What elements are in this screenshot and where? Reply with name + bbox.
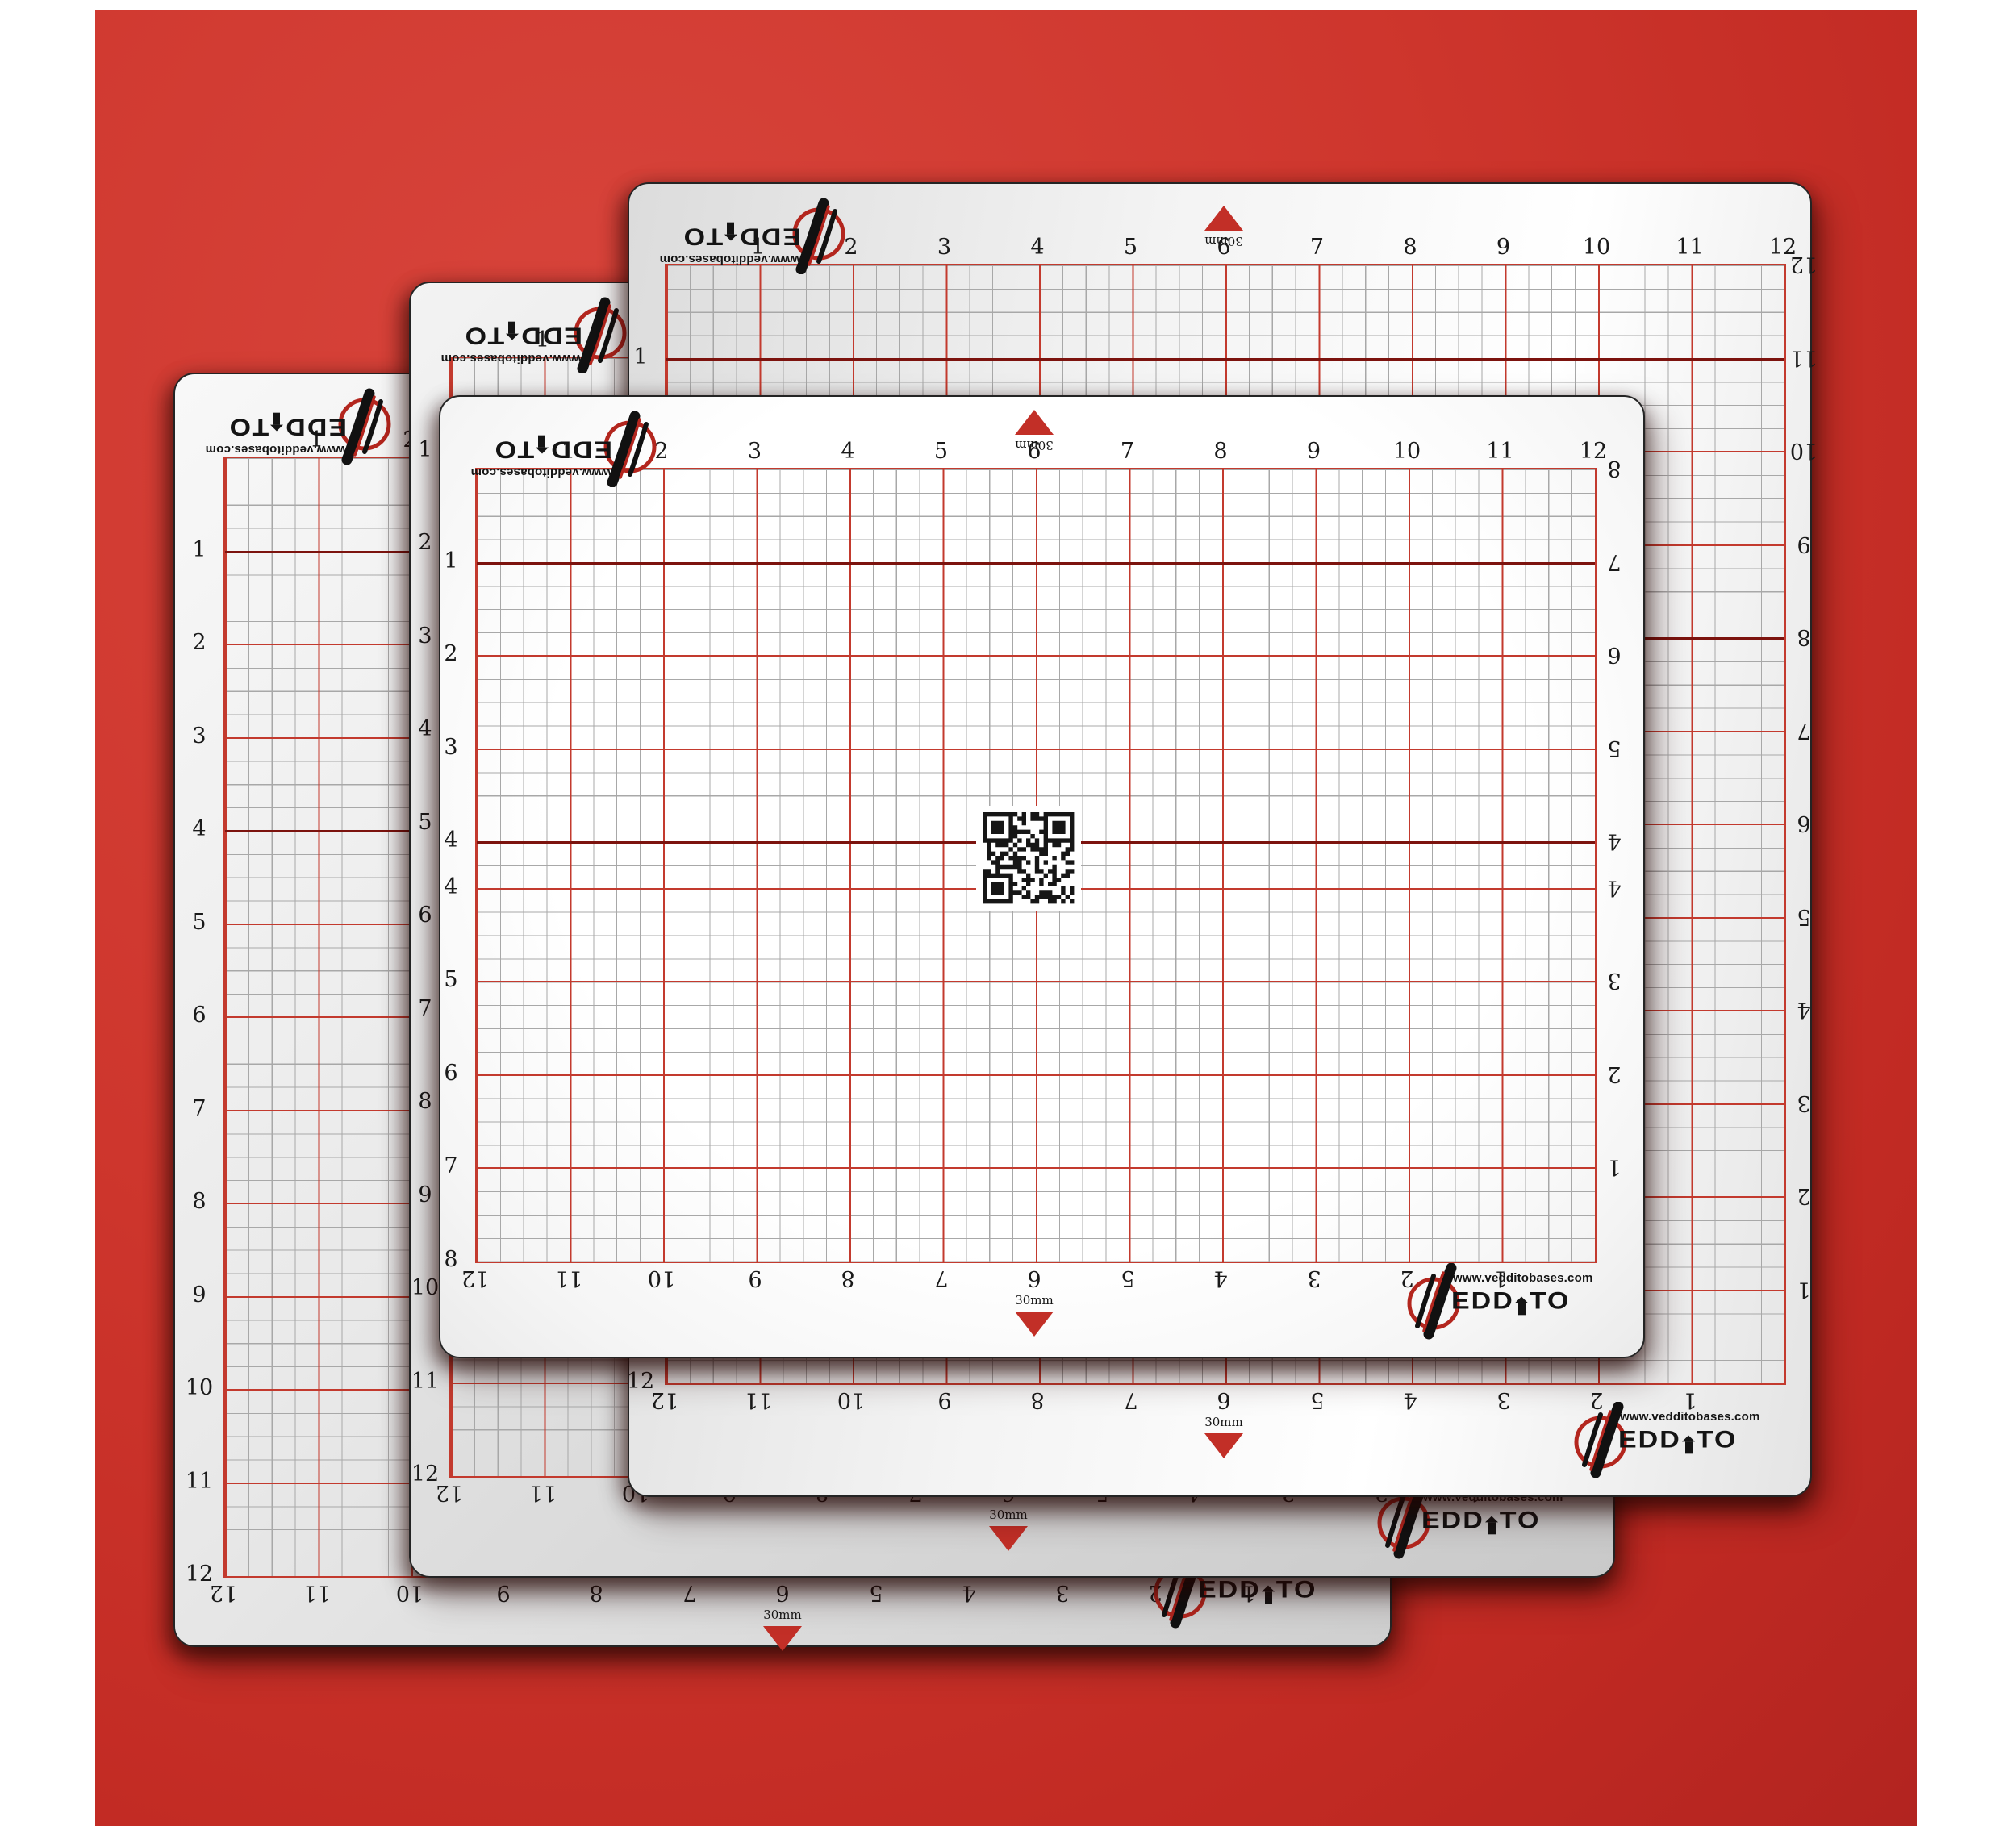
ruler-number-left: 1 xyxy=(433,550,469,573)
ruler-number-top: 4 xyxy=(830,440,866,463)
insert-arrow-down-icon xyxy=(1015,1312,1054,1337)
brand-wordmark: EDDTO xyxy=(228,413,347,440)
ruler-number-right: 6 xyxy=(1597,643,1632,665)
ruler-number-bottom: 6 xyxy=(1016,1266,1052,1289)
ruler-number-top: 7 xyxy=(1300,236,1335,259)
ruler-number-bottom: 11 xyxy=(551,1266,586,1289)
ruler-number-right: 3 xyxy=(1786,1091,1822,1114)
letter-i-arrow-icon xyxy=(271,413,282,432)
brand-wordmark: EDDTO xyxy=(1451,1287,1570,1315)
brand-url: www.vedditobases.com xyxy=(471,465,611,479)
ruler-number-bottom: 4 xyxy=(951,1581,987,1604)
ruler-number-left: 7 xyxy=(182,1098,217,1120)
insert-arrow-down-icon xyxy=(1204,1433,1243,1458)
wordmark-left: EDD xyxy=(1618,1426,1681,1453)
ruler-number-bottom: 3 xyxy=(1045,1581,1080,1604)
wordmark-right: TO xyxy=(1276,1576,1317,1604)
ruler-number-top: 10 xyxy=(1389,440,1425,463)
veddito-logo: www.vedditobases.comEDDTO xyxy=(219,392,397,460)
ruler-number-left: 1 xyxy=(623,346,658,369)
ruler-number-top: 5 xyxy=(1113,236,1149,259)
ruler-number-right: 4 xyxy=(1597,829,1632,852)
ruler-number-right: 9 xyxy=(1786,532,1822,555)
qr-code-pattern xyxy=(976,806,1081,911)
ruler-number-left: 5 xyxy=(433,969,469,991)
wordmark-right: TO xyxy=(1500,1507,1541,1534)
wordmark-left: EDD xyxy=(738,223,801,250)
ruler-number-bottom: 8 xyxy=(578,1581,614,1604)
ruler-number-bottom: 4 xyxy=(1203,1266,1238,1289)
ruler-number-top: 4 xyxy=(1020,236,1055,259)
ruler-number-right: 7 xyxy=(1597,550,1632,573)
ruler-number-bottom: 7 xyxy=(924,1266,959,1289)
arrow-label-30mm: 30mm xyxy=(1196,1414,1252,1430)
ruler-number-left: 5 xyxy=(182,911,217,934)
insert-arrow-down-icon xyxy=(763,1626,802,1651)
wordmark-right: TO xyxy=(464,322,505,349)
brand-url: www.vedditobases.com xyxy=(441,352,582,365)
ruler-number-right: 8 xyxy=(1597,457,1632,479)
i-arrow-stem xyxy=(1488,1522,1496,1534)
brand-wordmark: EDDTO xyxy=(1421,1507,1540,1534)
grid-inch-line xyxy=(477,562,1595,565)
ruler-number-left: 2 xyxy=(182,632,217,654)
ruler-number-right: 6 xyxy=(1786,811,1822,834)
brand-url: www.vedditobases.com xyxy=(206,443,346,457)
i-arrow-stem xyxy=(1685,1441,1693,1453)
ruler-number-right: 10 xyxy=(1786,439,1822,461)
i-arrow-tip xyxy=(1485,1516,1498,1522)
brand-wordmark: EDDTO xyxy=(1618,1426,1737,1453)
grid-inch-line xyxy=(477,655,1595,657)
ruler-number-left: 8 xyxy=(407,1091,443,1113)
wordmark-left: EDD xyxy=(1198,1576,1261,1604)
ruler-number-left: 10 xyxy=(182,1377,217,1399)
ruler-number-bottom: 5 xyxy=(858,1581,894,1604)
ruler-number-bottom: 8 xyxy=(1020,1388,1055,1411)
ruler-number-bottom: 11 xyxy=(525,1481,561,1503)
i-arrow-stem xyxy=(1518,1303,1526,1315)
ruler-number-bottom: 11 xyxy=(299,1581,335,1604)
ruler-number-right: 4 xyxy=(1786,998,1822,1020)
letter-i-arrow-icon xyxy=(536,436,547,454)
ruler-number-right: 5 xyxy=(1786,905,1822,928)
ruler-number-bottom: 6 xyxy=(1206,1388,1242,1411)
wordmark-right: TO xyxy=(1697,1426,1738,1453)
ruler-number-bottom: 10 xyxy=(644,1266,679,1289)
grid-inch-line xyxy=(477,1074,1595,1076)
i-arrow-tip xyxy=(270,425,283,432)
i-arrow-stem xyxy=(727,223,734,235)
product-photo: 1234567891011121211109876543211234567891… xyxy=(0,0,2016,1835)
ruler-number-left: 4 xyxy=(433,829,469,852)
ruler-number-top: 9 xyxy=(1486,236,1521,259)
arrow-label-30mm: 30mm xyxy=(1006,437,1062,453)
ruler-number-bottom: 11 xyxy=(741,1388,776,1411)
ruler-number-left: 10 xyxy=(407,1277,443,1299)
grid-inch-line xyxy=(666,358,1784,361)
ruler-number-left: 8 xyxy=(182,1191,217,1213)
i-arrow-tip xyxy=(724,235,737,241)
ruler-number-left: 3 xyxy=(433,736,469,759)
ruler-number-bottom: 4 xyxy=(1392,1388,1428,1411)
i-arrow-stem xyxy=(508,322,515,334)
ruler-number-left: 6 xyxy=(407,904,443,927)
wordmark-left: EDD xyxy=(549,436,612,463)
i-arrow-stem xyxy=(538,436,545,448)
i-arrow-tip xyxy=(1262,1585,1275,1591)
ruler-number-left: 11 xyxy=(407,1370,443,1393)
ruler-number-bottom: 3 xyxy=(1486,1388,1521,1411)
ruler-number-bottom: 10 xyxy=(392,1581,428,1604)
ruler-number-left: 12 xyxy=(623,1370,658,1393)
wordmark-left: EDD xyxy=(520,322,582,349)
ruler-number-bottom: 5 xyxy=(1300,1388,1335,1411)
ruler-number-top: 3 xyxy=(927,236,962,259)
brand-wordmark: EDDTO xyxy=(464,322,582,349)
letter-i-arrow-icon xyxy=(1263,1585,1274,1604)
ruler-number-right: 2 xyxy=(1597,1062,1632,1085)
letter-i-arrow-icon xyxy=(1517,1296,1527,1315)
letter-i-arrow-icon xyxy=(1487,1516,1497,1534)
i-arrow-tip xyxy=(1682,1435,1695,1441)
i-arrow-stem xyxy=(1265,1591,1272,1604)
ruler-number-bottom: 7 xyxy=(1113,1388,1149,1411)
wordmark-right: TO xyxy=(682,223,724,250)
ruler-number-top: 7 xyxy=(1110,440,1146,463)
arrow-label-30mm: 30mm xyxy=(980,1507,1037,1523)
letter-i-arrow-icon xyxy=(725,223,736,241)
ruler-number-top: 10 xyxy=(1579,236,1614,259)
brand-wordmark: EDDTO xyxy=(1198,1576,1317,1604)
grid-inch-line xyxy=(477,749,1595,750)
ruler-number-bottom: 8 xyxy=(830,1266,866,1289)
veddito-logo: www.vedditobases.comEDDTO xyxy=(674,202,851,269)
wordmark-right: TO xyxy=(494,436,535,463)
ruler-number-left: 1 xyxy=(182,539,217,561)
ruler-number-left: 6 xyxy=(433,1062,469,1085)
i-arrow-tip xyxy=(536,448,549,454)
grid-inch-line xyxy=(477,981,1595,982)
i-arrow-stem xyxy=(273,413,280,425)
brand-url: www.vedditobases.com xyxy=(1453,1271,1593,1285)
ruler-number-top: 8 xyxy=(1392,236,1428,259)
insert-arrow-down-icon xyxy=(989,1526,1028,1551)
ruler-number-right: 4 xyxy=(1597,876,1632,899)
ruler-number-left: 3 xyxy=(182,725,217,748)
arrow-label-30mm: 30mm xyxy=(1006,1292,1062,1308)
brand-wordmark: EDDTO xyxy=(682,223,801,250)
ruler-number-left: 4 xyxy=(182,818,217,840)
cutting-mat-front: 1234567891011121211109876543211234456788… xyxy=(439,395,1645,1358)
ruler-number-bottom: 10 xyxy=(833,1388,869,1411)
insert-arrow-up-icon xyxy=(1204,206,1243,231)
ruler-number-bottom: 3 xyxy=(1296,1266,1332,1289)
arrow-label-30mm: 30mm xyxy=(754,1607,811,1623)
brand-url: www.vedditobases.com xyxy=(660,252,800,266)
ruler-number-right: 7 xyxy=(1786,719,1822,741)
ruler-number-left: 6 xyxy=(182,1004,217,1027)
ruler-number-right: 1 xyxy=(1786,1278,1822,1300)
ruler-number-left: 7 xyxy=(433,1155,469,1178)
arrow-label-30mm: 30mm xyxy=(1196,233,1252,249)
ruler-number-top: 8 xyxy=(1203,440,1238,463)
veddito-logo: www.vedditobases.comEDDTO xyxy=(455,301,632,369)
ruler-number-top: 11 xyxy=(1672,236,1708,259)
wordmark-right: TO xyxy=(1530,1287,1571,1315)
ruler-number-bottom: 9 xyxy=(486,1581,521,1604)
ruler-number-bottom: 6 xyxy=(765,1581,800,1604)
ruler-number-right: 12 xyxy=(1786,252,1822,275)
veddito-logo: www.vedditobases.comEDDTO xyxy=(1568,1407,1746,1474)
ruler-number-left: 2 xyxy=(433,643,469,665)
ruler-number-left: 11 xyxy=(182,1470,217,1493)
brand-url: www.vedditobases.com xyxy=(1620,1410,1760,1424)
qr-code xyxy=(976,806,1081,911)
grid-inch-line xyxy=(477,1167,1595,1169)
insert-arrow-up-icon xyxy=(1015,410,1054,435)
wordmark-right: TO xyxy=(228,413,269,440)
ruler-number-right: 11 xyxy=(1786,346,1822,369)
ruler-number-right: 8 xyxy=(1786,625,1822,648)
ruler-number-top: 11 xyxy=(1483,440,1518,463)
wordmark-left: EDD xyxy=(284,413,347,440)
ruler-number-left: 9 xyxy=(407,1184,443,1207)
veddito-logo: www.vedditobases.comEDDTO xyxy=(485,415,662,482)
ruler-number-left: 8 xyxy=(433,1249,469,1271)
i-arrow-tip xyxy=(1515,1296,1528,1303)
veddito-logo: www.vedditobases.comEDDTO xyxy=(1371,1487,1549,1555)
ruler-number-left: 4 xyxy=(433,876,469,899)
letter-i-arrow-icon xyxy=(507,322,517,340)
ruler-number-bottom: 9 xyxy=(737,1266,773,1289)
ruler-number-bottom: 9 xyxy=(927,1388,962,1411)
ruler-number-left: 12 xyxy=(407,1463,443,1486)
wordmark-left: EDD xyxy=(1421,1507,1484,1534)
brand-wordmark: EDDTO xyxy=(494,436,612,463)
ruler-number-bottom: 7 xyxy=(672,1581,707,1604)
ruler-number-left: 9 xyxy=(182,1284,217,1307)
veddito-logo: www.vedditobases.comEDDTO xyxy=(1401,1268,1579,1336)
i-arrow-tip xyxy=(506,334,519,340)
letter-i-arrow-icon xyxy=(1684,1435,1694,1453)
ruler-number-top: 9 xyxy=(1296,440,1332,463)
ruler-number-bottom: 5 xyxy=(1110,1266,1146,1289)
ruler-number-right: 3 xyxy=(1597,969,1632,991)
ruler-number-left: 7 xyxy=(407,998,443,1020)
ruler-number-left: 1 xyxy=(407,439,443,461)
ruler-number-right: 1 xyxy=(1597,1155,1632,1178)
wordmark-left: EDD xyxy=(1451,1287,1514,1315)
ruler-number-right: 5 xyxy=(1597,736,1632,759)
ruler-number-top: 5 xyxy=(924,440,959,463)
ruler-number-top: 3 xyxy=(737,440,773,463)
ruler-number-right: 2 xyxy=(1786,1184,1822,1207)
ruler-number-left: 12 xyxy=(182,1563,217,1586)
